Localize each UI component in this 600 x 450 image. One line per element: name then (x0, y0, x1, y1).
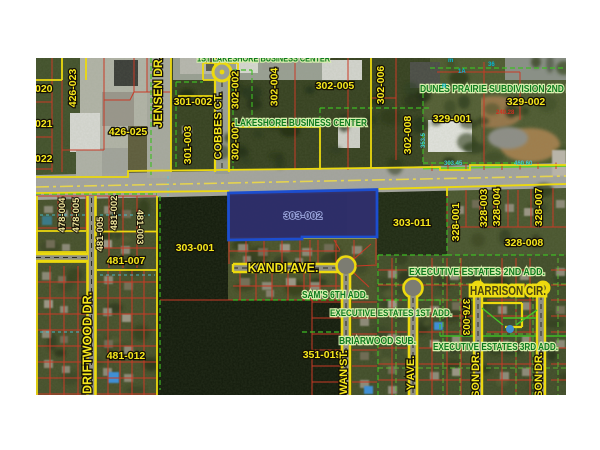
svg-text:COBBES CT.: COBBES CT. (213, 93, 225, 160)
svg-text:351-019: 351-019 (303, 349, 342, 361)
svg-text:478-005: 478-005 (71, 197, 82, 233)
svg-text:EXECUTIVE ESTATES 1ST ADD.: EXECUTIVE ESTATES 1ST ADD. (330, 308, 452, 319)
svg-text:SON DR.: SON DR. (533, 352, 545, 398)
svg-text:020: 020 (35, 83, 53, 95)
svg-text:302-004: 302-004 (269, 68, 281, 107)
svg-text:1A: 1A (458, 69, 466, 75)
svg-text:303-011: 303-011 (393, 217, 431, 229)
svg-text:HARRISON CIR.: HARRISON CIR. (470, 284, 546, 298)
svg-text:SON DR.: SON DR. (470, 352, 482, 398)
svg-text:m: m (448, 58, 453, 64)
svg-text:EXECUTIVE ESTATES 3RD ADD.: EXECUTIVE ESTATES 3RD ADD. (433, 342, 558, 353)
svg-text:301-002: 301-002 (174, 96, 213, 108)
svg-text:JENSEN DR.: JENSEN DR. (151, 56, 165, 128)
svg-text:481-003: 481-003 (134, 210, 145, 245)
svg-text:R: R (442, 84, 447, 90)
svg-text:EXECUTIVE ESTATES 2ND ADD.: EXECUTIVE ESTATES 2ND ADD. (409, 266, 545, 278)
svg-text:303-002: 303-002 (284, 210, 323, 222)
svg-text:481-005: 481-005 (95, 216, 106, 252)
svg-text:KANDI AVE.: KANDI AVE. (248, 261, 319, 275)
svg-text:328-001: 328-001 (450, 203, 462, 242)
svg-text:SWAN ST.: SWAN ST. (338, 350, 350, 402)
svg-text:376-003: 376-003 (460, 299, 471, 336)
svg-text:302-008: 302-008 (402, 116, 414, 155)
svg-text:Y AVE.: Y AVE. (405, 356, 417, 391)
svg-text:481-007: 481-007 (107, 255, 146, 267)
svg-text:301-003: 301-003 (182, 126, 194, 165)
svg-text:478-004: 478-004 (57, 197, 68, 233)
svg-text:021: 021 (35, 118, 53, 130)
svg-text:302-002: 302-002 (230, 71, 242, 110)
svg-text:303-001: 303-001 (176, 242, 215, 254)
svg-text:BRIARWOOD SUB.: BRIARWOOD SUB. (339, 336, 416, 347)
svg-text:SAM'S 6TH ADD.: SAM'S 6TH ADD. (302, 290, 368, 301)
svg-text:328-004: 328-004 (491, 188, 503, 227)
svg-text:328-008: 328-008 (505, 237, 544, 249)
svg-text:329-002: 329-002 (507, 96, 546, 108)
svg-text:022: 022 (35, 153, 53, 165)
svg-text:302-005: 302-005 (316, 80, 355, 92)
svg-text:240.28: 240.28 (496, 110, 515, 116)
svg-text:426-023: 426-023 (67, 69, 79, 108)
svg-text:481-002: 481-002 (109, 196, 120, 231)
svg-text:329-001: 329-001 (433, 113, 472, 125)
svg-text:426-025: 426-025 (109, 126, 148, 138)
svg-text:36: 36 (488, 62, 495, 68)
svg-text:303.45: 303.45 (444, 161, 463, 167)
svg-text:481-012: 481-012 (107, 350, 146, 362)
svg-text:328-007: 328-007 (533, 188, 545, 227)
svg-text:DRIFTWOOD DR.: DRIFTWOOD DR. (81, 292, 95, 394)
svg-text:460.60: 460.60 (514, 161, 533, 167)
svg-text:LAKESHORE BUSINESS CENTER: LAKESHORE BUSINESS CENTER (235, 117, 367, 129)
svg-text:302-006: 302-006 (375, 66, 387, 105)
svg-text:328-003: 328-003 (478, 189, 490, 228)
svg-text:353.5: 353.5 (421, 132, 427, 148)
